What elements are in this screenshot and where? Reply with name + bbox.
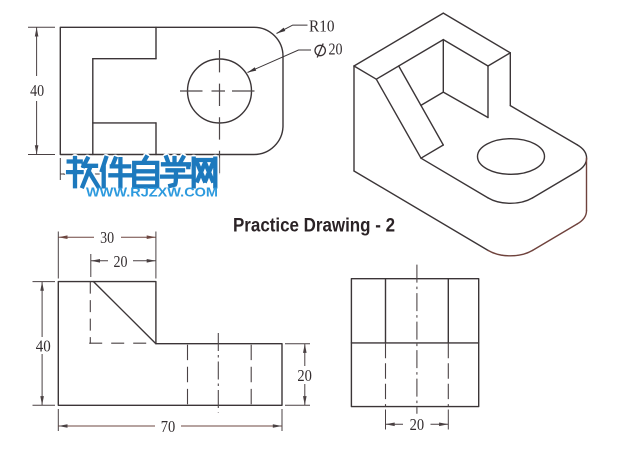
svg-text:20: 20 (410, 415, 425, 434)
svg-text:70: 70 (161, 417, 176, 436)
svg-text:40: 40 (30, 81, 44, 100)
svg-text:20: 20 (114, 252, 128, 271)
svg-text:20: 20 (329, 40, 343, 59)
svg-text:R10: R10 (309, 17, 335, 36)
svg-text:30: 30 (100, 228, 114, 247)
svg-text:Practice Drawing - 2: Practice Drawing - 2 (233, 216, 395, 237)
svg-text:WWW.RJZXW.COM: WWW.RJZXW.COM (86, 185, 218, 200)
svg-text:40: 40 (36, 337, 51, 356)
svg-text:20: 20 (297, 366, 312, 385)
